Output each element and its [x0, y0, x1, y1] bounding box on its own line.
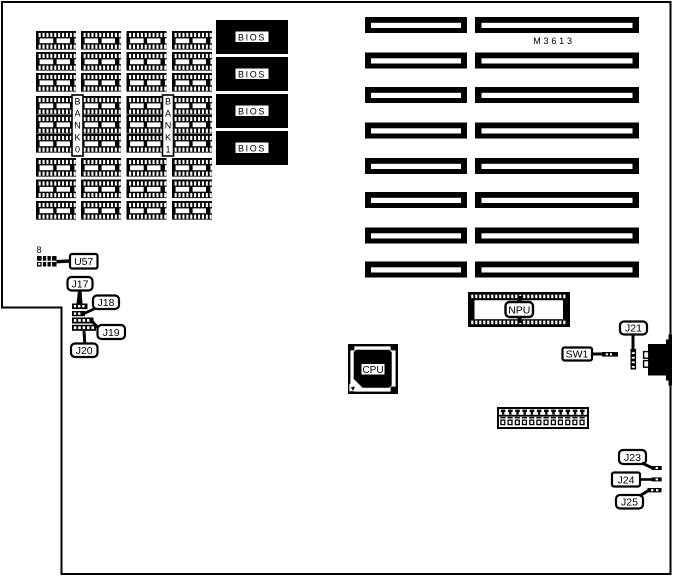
svg-text:J24: J24 [618, 474, 635, 486]
svg-text:NPU: NPU [508, 305, 530, 317]
svg-text:8: 8 [37, 245, 42, 255]
svg-text:J23: J23 [624, 452, 641, 464]
svg-text:SW1: SW1 [566, 349, 589, 361]
svg-text:1: 1 [165, 145, 170, 155]
svg-text:J19: J19 [103, 327, 120, 339]
svg-text:J25: J25 [621, 497, 638, 509]
svg-text:B: B [165, 97, 171, 107]
svg-text:U57: U57 [74, 256, 93, 268]
svg-text:N: N [74, 121, 81, 131]
svg-text:K: K [165, 133, 171, 143]
svg-text:CPU: CPU [362, 365, 383, 376]
svg-text:A: A [74, 109, 80, 119]
svg-text:J21: J21 [625, 323, 642, 335]
svg-text:A: A [165, 109, 171, 119]
svg-text:J20: J20 [76, 345, 93, 357]
svg-text:0: 0 [75, 145, 80, 155]
svg-text:B: B [74, 97, 80, 107]
svg-text:J18: J18 [98, 297, 115, 309]
svg-text:M3613: M3613 [533, 36, 575, 46]
svg-text:K: K [74, 133, 80, 143]
svg-text:J17: J17 [72, 279, 89, 291]
svg-text:N: N [165, 121, 172, 131]
